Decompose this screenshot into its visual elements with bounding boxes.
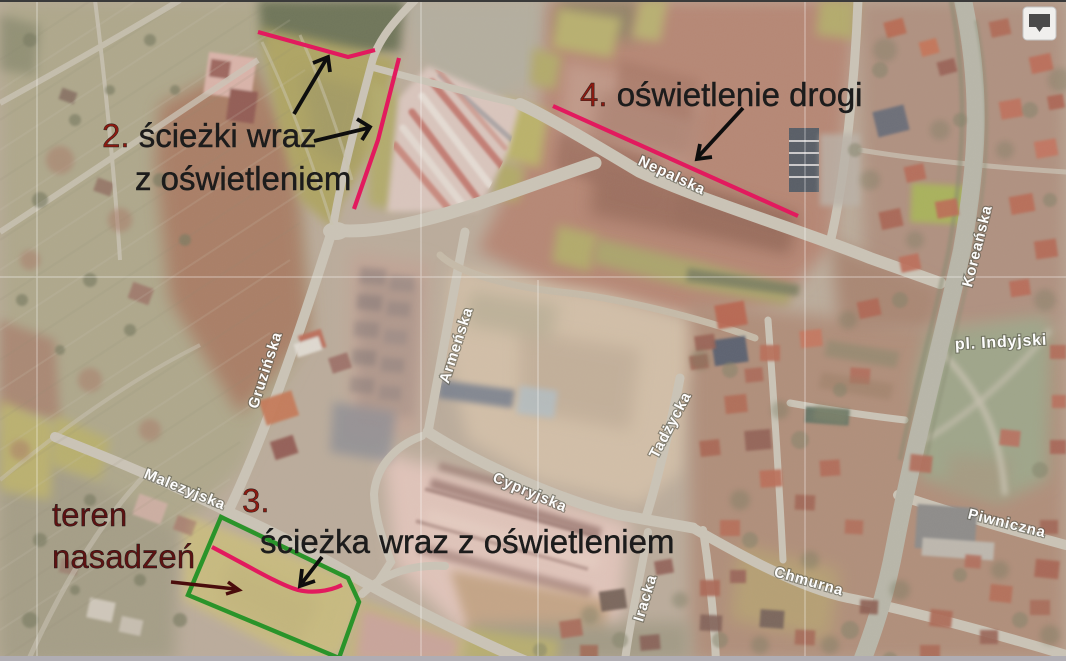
svg-text:2. ścieżki wraz: 2. ścieżki wraz (102, 117, 317, 154)
svg-text:nasadzeń: nasadzeń (52, 538, 195, 575)
svg-text:4. oświetlenie drogi: 4. oświetlenie drogi (580, 76, 863, 113)
svg-text:z oświetleniem: z oświetleniem (135, 160, 351, 197)
svg-text:3.: 3. (242, 482, 270, 519)
svg-text:ścieżka wraz z oświetleniem: ścieżka wraz z oświetleniem (260, 523, 674, 560)
svg-text:teren: teren (52, 496, 127, 533)
